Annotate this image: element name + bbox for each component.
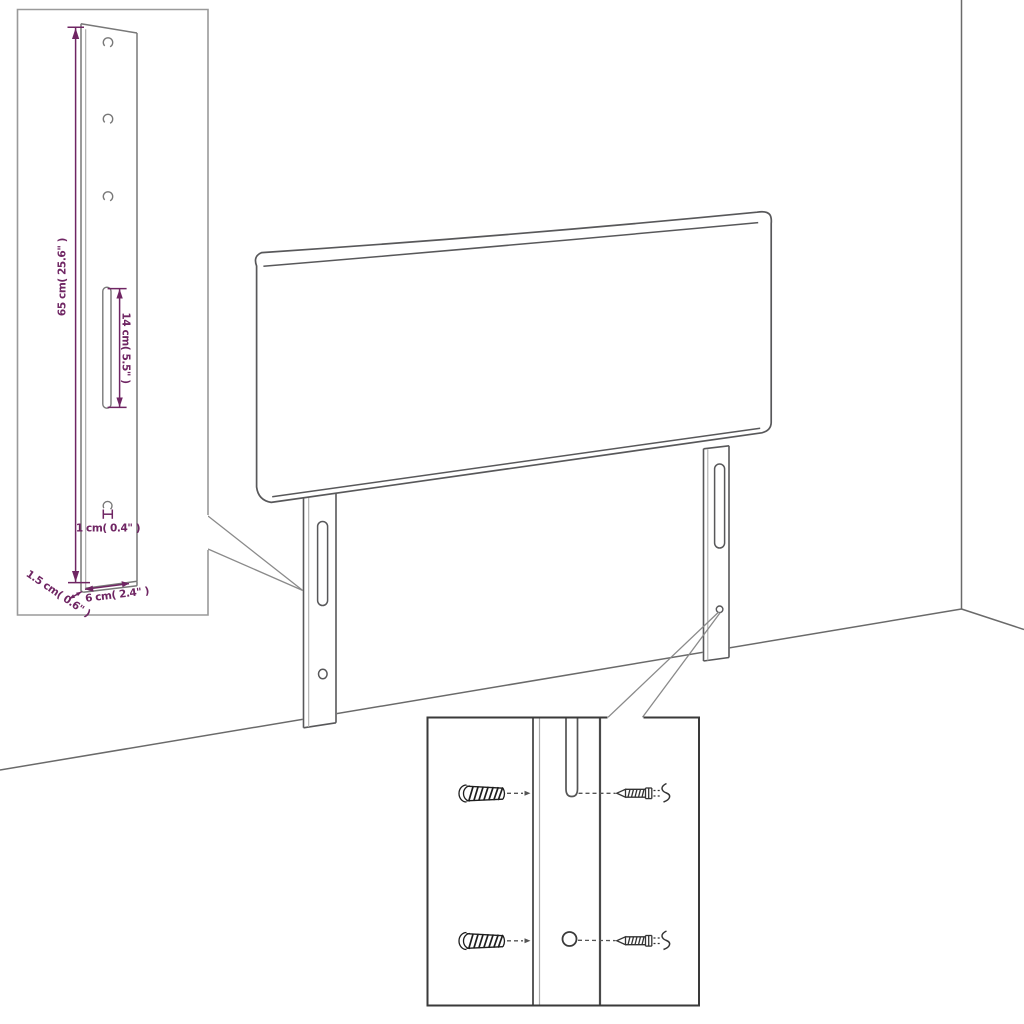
bracket-hole-1 xyxy=(103,38,112,47)
slot-length-label: 14 cm( 5.5" ) xyxy=(120,312,132,383)
right-leg xyxy=(703,445,730,663)
diagram-canvas: 65 cm( 25.6" ) 14 cm( 5.5" ) 1 cm( 0.4" … xyxy=(0,0,1024,1024)
bracket-hole-small xyxy=(103,501,112,510)
leg-detail-inset: 65 cm( 25.6" ) 14 cm( 5.5" ) 1 cm( 0.4" … xyxy=(18,10,209,620)
leader-right-outer xyxy=(608,612,719,717)
leg-height-label: 65 cm( 25.6" ) xyxy=(57,238,69,316)
floor-line-right xyxy=(962,609,1024,630)
leader-right-inner xyxy=(643,613,721,718)
left-leg xyxy=(303,489,337,729)
left-leg-hole xyxy=(319,669,328,679)
leader-lines xyxy=(208,516,720,717)
bracket-hole-2 xyxy=(103,114,112,123)
headboard-panel xyxy=(255,212,771,503)
leader-left-upper xyxy=(208,516,303,591)
bracket-hole-3 xyxy=(103,192,112,201)
mount-detail-inset xyxy=(428,718,700,1006)
headboard-dimension-diagram: 65 cm( 25.6" ) 14 cm( 5.5" ) 1 cm( 0.4" … xyxy=(0,0,1024,1024)
bracket-slot xyxy=(103,287,111,408)
hole-diameter-label: 1 cm( 0.4" ) xyxy=(76,523,140,535)
right-leg-slot xyxy=(715,464,725,548)
headboard-outline xyxy=(255,212,771,503)
mount-inset-bg xyxy=(428,718,700,1006)
left-leg-slot xyxy=(318,522,328,606)
mount-strip-hole xyxy=(563,932,577,946)
right-leg-hole xyxy=(716,606,723,613)
leader-left-lower xyxy=(208,549,303,591)
